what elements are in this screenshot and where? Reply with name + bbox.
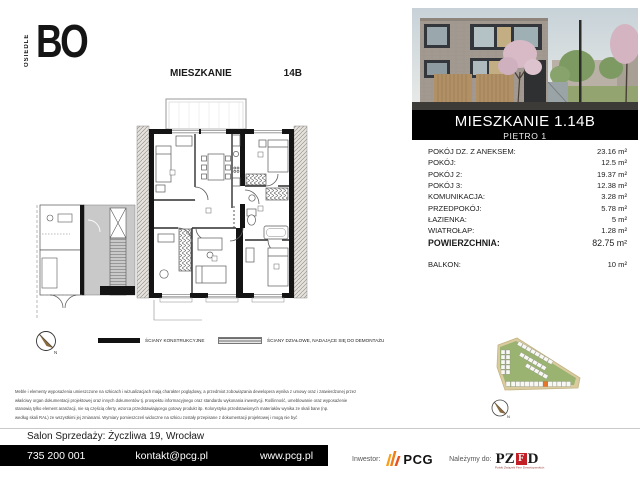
unit-title: MIESZKANIE 1.14B [412,113,638,130]
balcony-value: 10 m² [608,260,627,269]
lamp-post [579,20,582,104]
door-arcs [178,174,282,254]
legend-structural-label: ŚCIANY KONSTRUKCYJNE [145,338,204,343]
pzfd-d: D [528,452,539,466]
row-value: 5.78 m² [601,204,627,213]
pzfd-pz: PZ [495,452,514,466]
footer-divider [0,428,640,429]
footer-contact-bar: 735 200 001 kontakt@pcg.pl www.pcg.pl [0,445,328,466]
washer-dryer [266,188,288,200]
dining-table [208,154,224,180]
sales-office-address: Salon Sprzedaży: Życzliwa 19, Wrocław [27,431,204,442]
compass-site: N [492,400,510,419]
row-value: 23.16 m² [597,147,627,156]
osiedle-bo-logo: OSIEDLE BO [24,20,94,80]
row-label: PRZEDPOKÓJ: [428,204,482,213]
disclaimer-line: stanowią tylko element aranżacji, nie są… [15,407,341,412]
row-value: 19.37 m² [597,170,627,179]
row-value: 12.5 m² [601,158,627,167]
pcg-logo-text: PCG [403,452,433,467]
table-row: POKÓJ 3:12.38 m² [428,180,627,191]
website-url: www.pcg.pl [260,450,313,462]
table-row: WIATROŁAP:1.28 m² [428,225,627,236]
table-row: POKÓJ DZ. Z ANEKSEM:23.16 m² [428,146,627,157]
row-value: 12.38 m² [597,181,627,190]
bed-3 [196,266,226,283]
legend-partition-swatch [218,337,262,344]
disclaimer-line: według skali RAL) ze wszystkimi jej zmia… [15,416,341,421]
table-row-balcony: BALKON:10 m² [428,258,627,269]
floor-plan-title-label: MIESZKANIE [170,68,232,79]
site-plan: N [470,330,600,425]
disclaimer-line: właściwy organ dokumentacji projektowej … [15,399,341,404]
phone-number: 735 200 001 [27,450,85,462]
floor-plan-title-unit: 14B [284,68,302,79]
floor-plan-title: MIESZKANIE14B [170,68,302,79]
hob [234,167,239,172]
furniture [156,135,288,286]
fridge [233,135,241,146]
table-row: POKÓJ 2:19.37 m² [428,169,627,180]
leader-line [154,300,202,320]
pzfd-logo: PZ F D Polski Związek Firm Deweloperskic… [495,452,538,466]
floor-plan-drawing: N [30,88,345,368]
balcony-outline [166,99,246,129]
balcony-label: BALKON: [428,260,461,269]
site-highlight-unit [543,382,547,387]
table-row: POKÓJ:12.5 m² [428,157,627,168]
total-label: POWIERZCHNIA: [428,238,500,248]
logo-main-text: BO [36,14,86,68]
row-label: ŁAZIENKA: [428,215,467,224]
legend-partition: ŚCIANY DZIAŁOWE, NADAJĄCE SIĘ DO DEMONTA… [218,336,469,345]
row-label: POKÓJ 2: [428,170,462,179]
row-label: WIATROŁAP: [428,226,474,235]
compass-plan: N [37,332,58,356]
wardrobe-hatched-1 [246,174,266,185]
kitchen-sink [233,151,238,156]
row-value: 5 m² [612,215,627,224]
pzfd-subtitle: Polski Związek Firm Deweloperskich [495,466,544,469]
desk [198,238,222,250]
unit-floor: PIĘTRO 1 [412,131,638,141]
row-label: KOMUNIKACJA: [428,192,485,201]
legend-partition-label: ŚCIANY DZIAŁOWE, NADAJĄCE SIĘ DO DEMONTA… [267,338,384,343]
row-value: 3.28 m² [601,192,627,201]
toilet [248,215,256,225]
wardrobe-hatched-2 [179,229,191,271]
building-render-photo [412,8,638,110]
pzfd-f-box: F [516,453,527,465]
stair-annex [37,205,135,320]
compass-plan-label: N [54,350,57,355]
disclaimer-line: Meble i elementy wyposażenia umieszczone… [15,390,341,395]
brochure-page: OSIEDLE BO MIESZKANIE14B [0,0,640,480]
row-label: POKÓJ: [428,158,456,167]
logo-vertical-text: OSIEDLE [24,28,30,72]
wardrobe-box [176,136,192,146]
total-value: 82.75 m² [592,238,627,248]
member-label: Należymy do: [449,456,491,463]
email-address: kontakt@pcg.pl [135,450,208,462]
pcg-flame-icon [385,450,401,468]
table-row: KOMUNIKACJA:3.28 m² [428,191,627,202]
bed-1 [156,146,171,182]
pavement [412,102,638,110]
row-label: POKÓJ DZ. Z ANEKSEM: [428,147,516,156]
partner-logos: Inwestor: PCG Należymy do: PZ F D Polski… [352,447,632,471]
legend-structural-swatch [98,338,140,343]
area-table: POKÓJ DZ. Z ANEKSEM:23.16 m² POKÓJ:12.5 … [428,146,627,270]
compass-site-label: N [507,414,510,419]
investor-label: Inwestor: [352,456,380,463]
table-row: PRZEDPOKÓJ:5.78 m² [428,202,627,213]
bathroom-sink [249,195,255,201]
bathtub [264,226,288,239]
bed-2 [268,140,288,172]
row-value: 1.28 m² [601,226,627,235]
table-row: ŁAZIENKA:5 m² [428,214,627,225]
table-row-total: POWIERZCHNIA:82.75 m² [428,236,627,249]
row-label: POKÓJ 3: [428,181,462,190]
unit-title-band: MIESZKANIE 1.14B PIĘTRO 1 [412,110,638,140]
